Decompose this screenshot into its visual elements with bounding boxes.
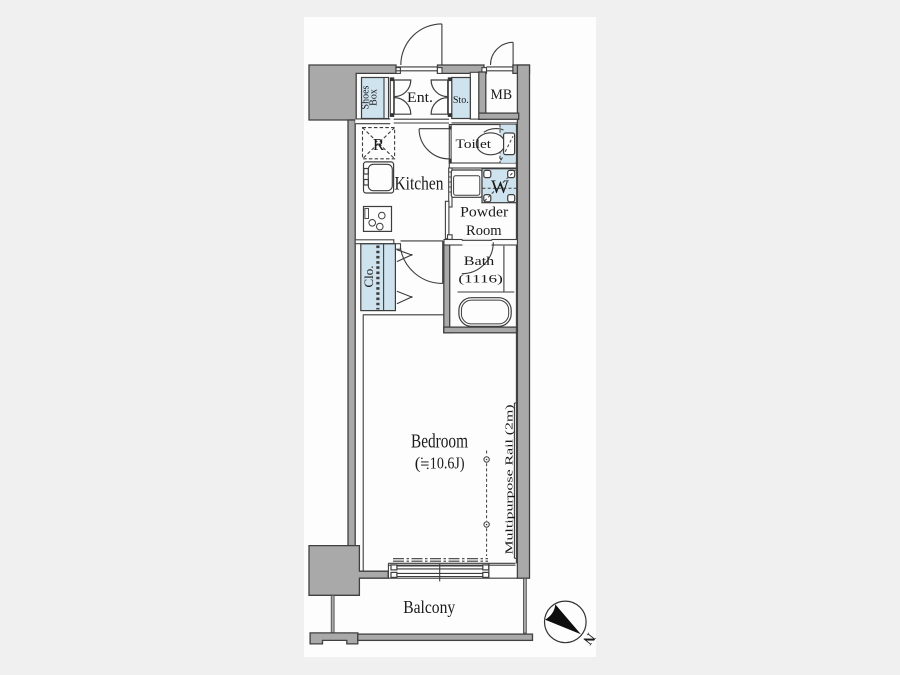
svg-text:Bedroom: Bedroom	[411, 430, 468, 452]
svg-text:(1116): (1116)	[458, 272, 503, 286]
svg-text:(: (	[415, 454, 421, 473]
svg-text:Multipurpose Rail (2m): Multipurpose Rail (2m)	[504, 404, 515, 555]
svg-text:Kitchen: Kitchen	[395, 174, 444, 195]
svg-text:Bath: Bath	[464, 254, 495, 268]
svg-text:Powder: Powder	[460, 205, 508, 221]
svg-text:Clo.: Clo.	[361, 265, 376, 287]
svg-text:Room: Room	[466, 223, 502, 239]
svg-text:Balcony: Balcony	[403, 597, 455, 617]
svg-text:Sto.: Sto.	[453, 95, 469, 106]
svg-text:Toilet: Toilet	[456, 136, 492, 151]
svg-text:R: R	[373, 135, 385, 154]
svg-text:MB: MB	[491, 87, 513, 103]
svg-text:Ent.: Ent.	[407, 90, 433, 106]
svg-text:W: W	[491, 177, 509, 198]
svg-text:10.6J): 10.6J)	[430, 454, 465, 473]
svg-text:Box: Box	[369, 89, 380, 106]
